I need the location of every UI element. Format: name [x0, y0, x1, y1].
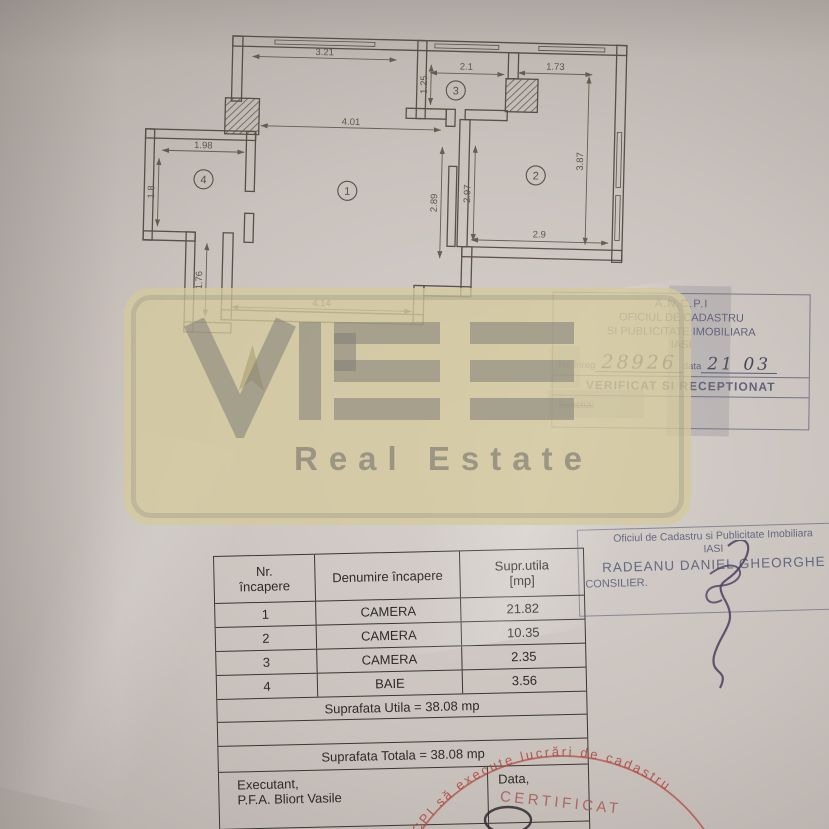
dim-label: 1.73 — [546, 62, 565, 73]
column-hatched — [505, 79, 538, 113]
cell-room-area: 3.56 — [462, 668, 586, 694]
dim-label: 2.97 — [462, 184, 473, 203]
dim-label: 1.76 — [194, 271, 205, 290]
cell-room-number: 4 — [217, 674, 317, 699]
dim-label: 2.9 — [533, 229, 546, 240]
room-number: 2 — [533, 170, 539, 182]
column-hatched — [225, 98, 260, 135]
windows — [270, 40, 624, 240]
cell-room-area: 10.35 — [461, 620, 585, 646]
room-number: 1 — [344, 186, 350, 198]
cell-room-number: 3 — [216, 650, 316, 675]
cell-room-number: 2 — [216, 626, 316, 651]
red-stamp-arc-text: ANCPI să execute lucrări de cadastru — [408, 744, 675, 829]
dim-label: 2.1 — [460, 62, 473, 73]
dim-label: 4.01 — [342, 117, 361, 128]
dim-label: 1.25 — [419, 75, 430, 94]
header-room-name: Denumire încapere — [314, 551, 460, 600]
header-room-number: Nr.încapere — [214, 555, 315, 603]
structural-columns — [225, 72, 538, 142]
vibe-real-estate-watermark: Real Estate — [124, 288, 691, 525]
dim-label: 3.87 — [575, 152, 586, 171]
dim-label: 1.8 — [146, 185, 157, 198]
stamp-date-value: 21 03 — [701, 357, 777, 374]
paper-edge-shade — [0, 0, 118, 829]
dim-label: 1.98 — [194, 140, 213, 151]
cell-room-name: CAMERA — [316, 646, 461, 672]
header-area: Supr.utila[mp] — [459, 549, 584, 598]
cell-room-name: CAMERA — [316, 622, 461, 648]
cell-room-number: 1 — [215, 602, 315, 627]
scanned-cadastral-document: { "floor_plan": { "rooms": ["1", "2", "3… — [0, 0, 829, 829]
round-certification-stamp: ANCPI să execute lucrări de cadastru CER… — [408, 738, 718, 829]
table-header-row: Nr.încapere Denumire încapere Supr.utila… — [214, 549, 584, 603]
dim-label: 3.21 — [315, 47, 334, 58]
signature-loop — [485, 807, 531, 829]
room-number: 4 — [200, 174, 206, 186]
cell-room-area: 21.82 — [460, 596, 584, 622]
cell-room-area: 2.35 — [461, 644, 585, 670]
vibe-logo-icon — [182, 318, 662, 438]
room-number: 3 — [453, 85, 459, 97]
dimension-lines — [155, 54, 612, 326]
signature-scribble — [670, 540, 760, 690]
cell-room-name: BAIE — [317, 670, 462, 696]
cell-room-name: CAMERA — [315, 598, 460, 624]
dim-label: 2.89 — [429, 194, 440, 213]
watermark-tagline: Real Estate — [294, 440, 593, 478]
red-stamp-center-text: CERTIFICAT — [499, 788, 622, 818]
